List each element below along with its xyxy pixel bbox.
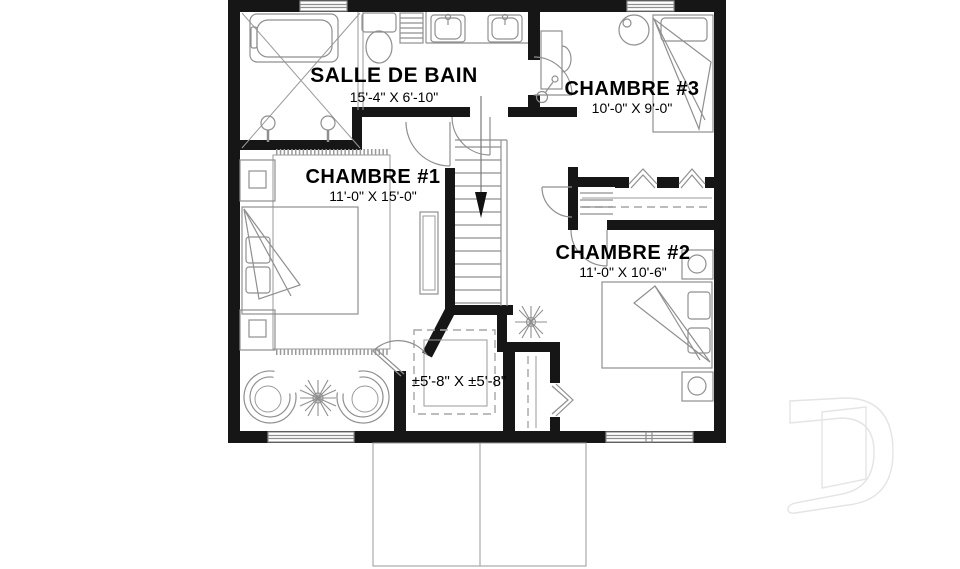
dresser: [420, 212, 438, 294]
closet-rod: [528, 356, 536, 428]
nightstand: [682, 372, 713, 401]
round-side-table: [619, 15, 649, 45]
round-chair: [337, 371, 389, 423]
sink: [488, 15, 522, 43]
watermark-logo: [788, 398, 893, 513]
round-chair: [244, 371, 296, 423]
room-label-salle-de-bain: SALLE DE BAIN: [310, 64, 478, 87]
floor-plan-drawing: SALLE DE BAIN 15'-4" X 6'-10" CHAMBRE #3…: [0, 0, 960, 569]
room-dimensions-chambre-3: 10'-0" X 9'-0": [592, 100, 673, 116]
closet-rod: [582, 198, 712, 207]
bed: [242, 207, 358, 314]
room-label-chambre-3: CHAMBRE #3: [564, 78, 699, 100]
double-vanity: [426, 12, 528, 43]
shower-head: [321, 116, 335, 142]
room-dimensions-walk-in: ±5'-8" X ±5'-8": [412, 373, 507, 390]
down-arrow: [475, 96, 487, 218]
window-double: [606, 432, 693, 442]
door-swing: [406, 122, 450, 166]
room-label-chambre-1: CHAMBRE #1: [305, 166, 440, 188]
plant: [515, 306, 547, 338]
room-dimensions-salle-de-bain: 15'-4" X 6'-10": [350, 89, 438, 105]
window: [627, 1, 674, 11]
linen-shelves: [580, 193, 613, 214]
floor-plan-page: SALLE DE BAIN 15'-4" X 6'-10" CHAMBRE #3…: [0, 0, 960, 569]
room-label-chambre-2: CHAMBRE #2: [555, 242, 690, 264]
walk-in-ceiling-line: [414, 330, 495, 414]
window: [268, 432, 354, 442]
nightstand: [240, 160, 275, 201]
door-swing: [452, 117, 490, 155]
toilet: [362, 13, 396, 63]
shower-head: [261, 116, 275, 142]
sink: [431, 15, 465, 43]
annex-outline: [373, 443, 586, 566]
bifold-door: [552, 384, 573, 416]
room-dimensions-chambre-2: 11'-0" X 10'-6": [579, 264, 666, 280]
plant: [300, 380, 336, 416]
nightstand: [240, 310, 275, 350]
room-dimensions-chambre-1: 11'-0" X 15'-0": [329, 188, 416, 204]
door-swing: [542, 187, 572, 217]
door-swing: [373, 341, 427, 376]
towel-ladder: [400, 13, 423, 43]
bed: [602, 282, 712, 368]
window: [300, 1, 347, 11]
